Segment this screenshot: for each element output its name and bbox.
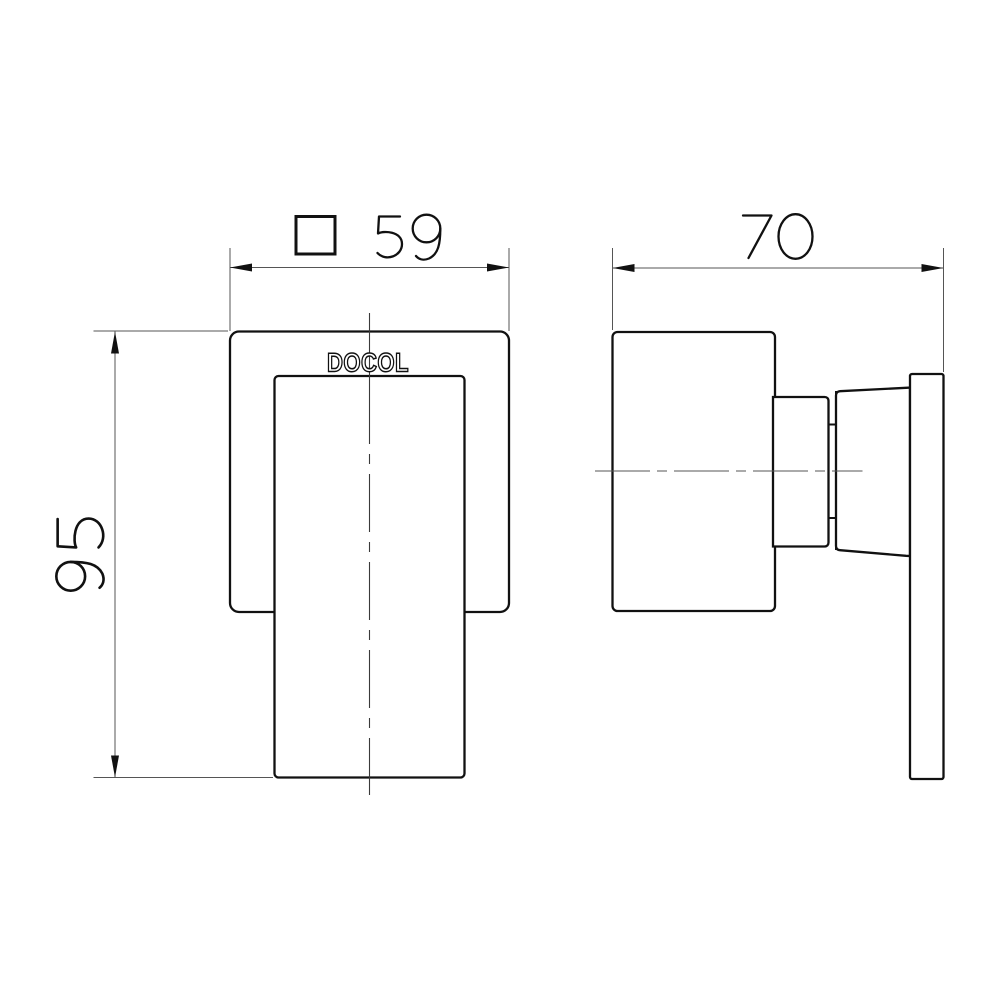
svg-text:DOCOL: DOCOL	[327, 347, 409, 377]
